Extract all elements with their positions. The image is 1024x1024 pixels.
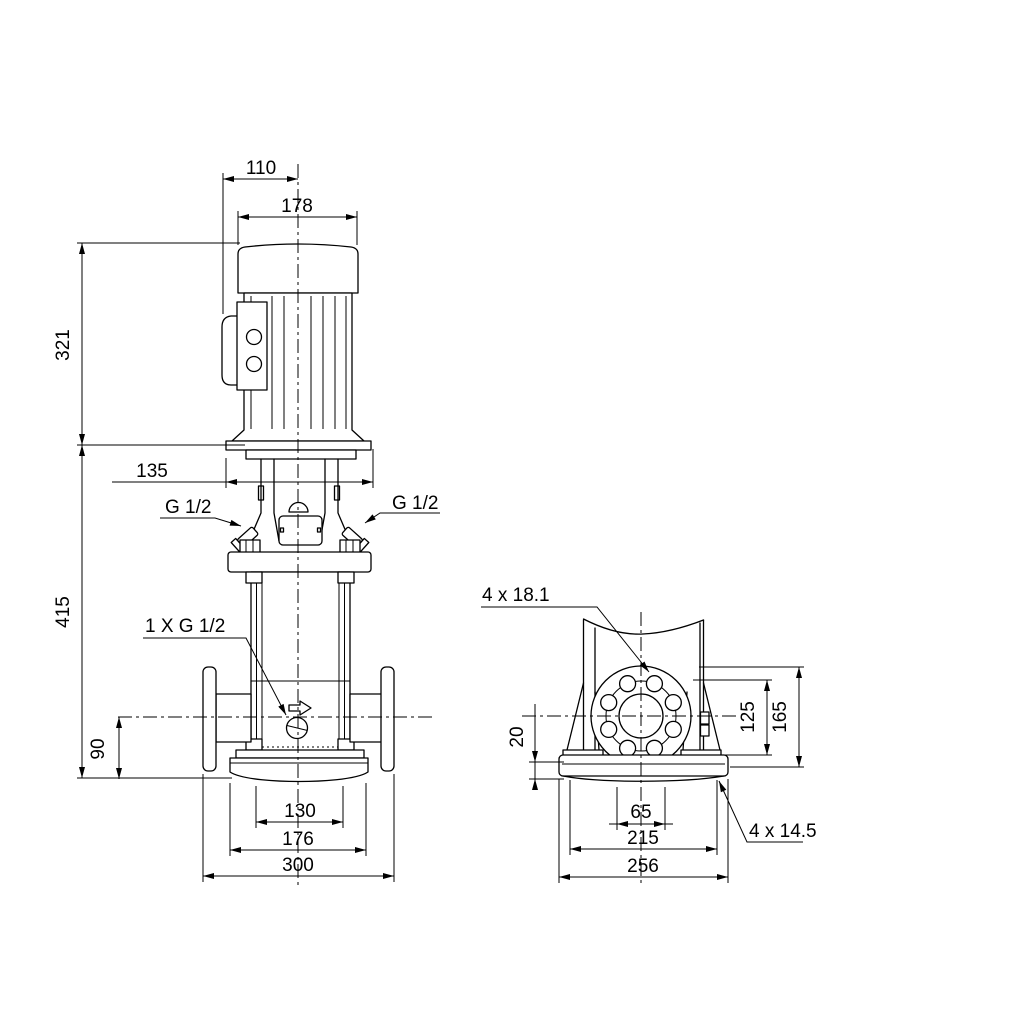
flange-holes-text: 4 x 18.1 bbox=[482, 585, 550, 606]
coupling-guard bbox=[279, 516, 322, 545]
port-hub-left bbox=[216, 694, 251, 742]
dim-300-text: 300 bbox=[282, 855, 314, 876]
base-block bbox=[230, 758, 368, 782]
pump-base-front bbox=[230, 750, 368, 782]
base-skirt bbox=[563, 776, 724, 781]
dim-125-text: 125 bbox=[738, 701, 759, 733]
label-base-holes: 4 x 14.5 bbox=[719, 781, 817, 842]
plug-left-text: G 1/2 bbox=[165, 497, 211, 518]
label-plug-left: G 1/2 bbox=[160, 497, 241, 526]
dim-135-text: 135 bbox=[136, 461, 168, 482]
pump-head-plate bbox=[228, 552, 371, 572]
stool-leg-rib-right bbox=[335, 486, 340, 500]
port-hub-right bbox=[350, 694, 383, 742]
side-view bbox=[559, 619, 728, 781]
pump-base-side bbox=[559, 755, 728, 781]
plug-nut-left bbox=[240, 540, 260, 553]
leader-line bbox=[160, 518, 241, 526]
base-holes-text: 4 x 14.5 bbox=[749, 821, 817, 842]
dim-65-text: 65 bbox=[630, 802, 651, 823]
dim-176-text: 176 bbox=[282, 829, 314, 850]
dim-321-text: 321 bbox=[53, 329, 74, 361]
chamber-bottom-plate bbox=[236, 750, 364, 758]
dim-178-text: 178 bbox=[281, 196, 313, 217]
pump-dimensional-drawing: 110 178 321 135 415 90 bbox=[0, 0, 1024, 1024]
dim-110-text: 110 bbox=[246, 158, 276, 179]
port-flange-right bbox=[381, 667, 394, 771]
drain-plug-text: 1 X G 1/2 bbox=[145, 616, 225, 637]
port-flange-left bbox=[203, 667, 216, 771]
base-plate bbox=[559, 755, 728, 776]
label-flange-holes: 4 x 18.1 bbox=[481, 585, 649, 672]
terminal-box-panel bbox=[237, 302, 267, 390]
dim-20-text: 20 bbox=[507, 726, 528, 747]
dim-215-text: 215 bbox=[627, 828, 659, 849]
cable-entry-hole-bottom bbox=[247, 357, 262, 372]
motor-stool bbox=[228, 459, 371, 572]
dim-base-plate-thickness: 20 bbox=[507, 704, 564, 790]
dim-motor-height: 321 bbox=[53, 243, 240, 445]
plug-nut-right bbox=[340, 540, 360, 553]
drawing-canvas: 110 178 321 135 415 90 bbox=[0, 0, 1024, 1024]
motor-flange-spigot bbox=[246, 450, 356, 459]
motor bbox=[222, 244, 371, 459]
dim-base-hole-spacing-front: 130 bbox=[256, 786, 343, 828]
dim-415-text: 415 bbox=[53, 596, 74, 628]
plug-right-text: G 1/2 bbox=[392, 493, 438, 514]
dim-256-text: 256 bbox=[627, 856, 659, 877]
leader-line bbox=[365, 513, 440, 523]
leader-line bbox=[481, 607, 649, 672]
break-line bbox=[584, 619, 704, 634]
label-plug-right: G 1/2 bbox=[365, 493, 440, 523]
dim-90-text: 90 bbox=[88, 738, 109, 759]
dim-130-text: 130 bbox=[284, 801, 316, 822]
dim-port-center-height: 90 bbox=[88, 717, 119, 779]
cable-entry-hole-top bbox=[247, 330, 262, 345]
ext-lines bbox=[529, 704, 564, 790]
dim-165-text: 165 bbox=[770, 701, 791, 733]
